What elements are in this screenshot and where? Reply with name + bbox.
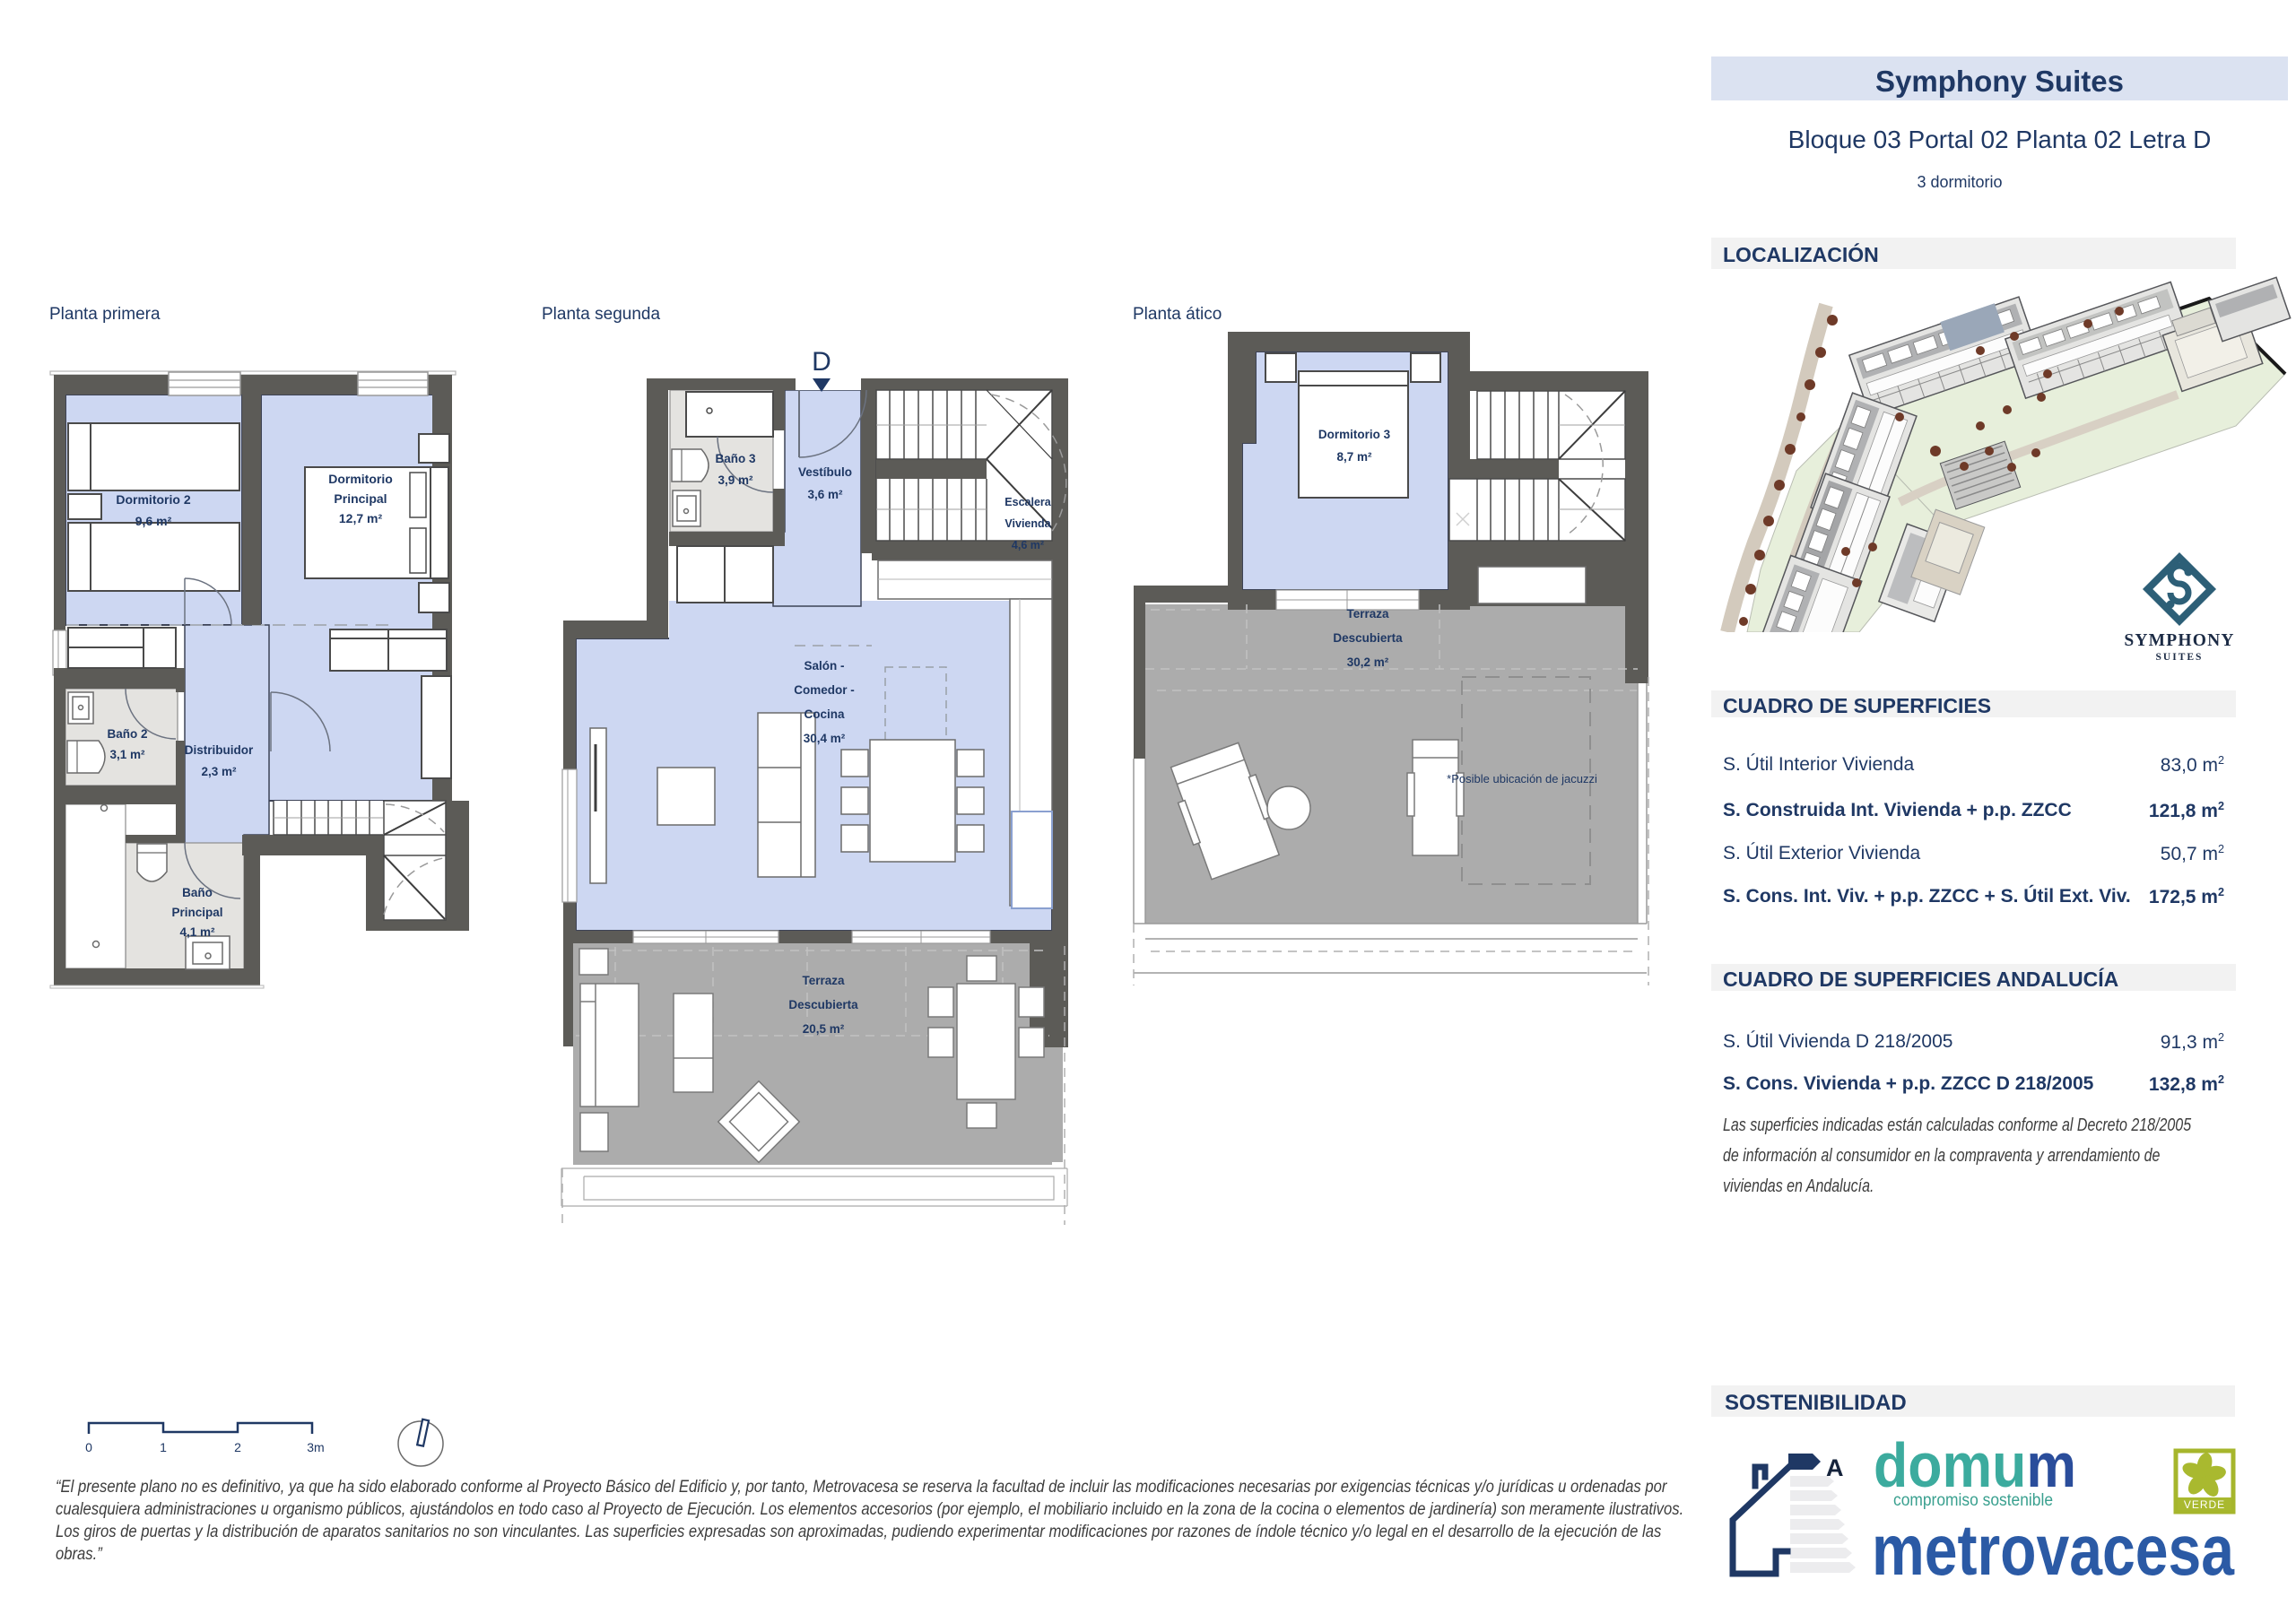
svg-text:Dormitorio 3: Dormitorio 3 <box>1318 428 1391 441</box>
svg-text:Terraza: Terraza <box>802 974 845 987</box>
svg-text:Principal: Principal <box>334 491 387 506</box>
svg-text:Principal: Principal <box>171 906 222 919</box>
svg-text:D: D <box>812 347 831 377</box>
svg-text:Cocina: Cocina <box>804 707 845 721</box>
svg-text:Distribuidor: Distribuidor <box>185 743 254 757</box>
svg-text:Baño 3: Baño 3 <box>715 452 756 465</box>
svg-text:30,2 m²: 30,2 m² <box>1347 655 1389 669</box>
svg-text:Vestíbulo: Vestíbulo <box>798 465 852 479</box>
svg-text:Baño 2: Baño 2 <box>107 727 147 741</box>
svg-text:2: 2 <box>234 1440 241 1454</box>
svg-text:0: 0 <box>85 1440 92 1454</box>
svg-text:20,5 m²: 20,5 m² <box>803 1022 845 1036</box>
svg-text:Vivienda: Vivienda <box>1004 517 1051 530</box>
svg-text:compromiso sostenible: compromiso sostenible <box>1893 1491 2053 1510</box>
svg-text:Dormitorio 2: Dormitorio 2 <box>116 492 190 507</box>
svg-text:3,6 m²: 3,6 m² <box>807 488 843 501</box>
svg-text:2,3 m²: 2,3 m² <box>201 765 237 778</box>
svg-text:12,7 m²: 12,7 m² <box>339 511 383 525</box>
svg-text:4,6 m²: 4,6 m² <box>1012 539 1044 551</box>
svg-text:A: A <box>1826 1454 1844 1481</box>
svg-text:VERDE: VERDE <box>2184 1498 2225 1511</box>
svg-text:SYMPHONY: SYMPHONY <box>2124 631 2234 650</box>
svg-text:Descubierta: Descubierta <box>1333 631 1403 645</box>
svg-text:Comedor -: Comedor - <box>794 683 855 697</box>
svg-text:3,9 m²: 3,9 m² <box>717 473 753 487</box>
svg-text:8,7 m²: 8,7 m² <box>1336 450 1372 464</box>
svg-text:3,1 m²: 3,1 m² <box>109 748 145 761</box>
svg-text:*Posible ubicación de jacuzzi: *Posible ubicación de jacuzzi <box>1447 772 1597 785</box>
svg-text:1: 1 <box>160 1440 167 1454</box>
svg-text:Escalera: Escalera <box>1004 496 1051 508</box>
svg-text:Baño: Baño <box>182 886 213 899</box>
svg-text:Descubierta: Descubierta <box>788 998 858 1011</box>
svg-text:SUITES: SUITES <box>2156 652 2204 663</box>
svg-text:4,1 m²: 4,1 m² <box>179 925 215 939</box>
svg-text:metrovacesa: metrovacesa <box>1872 1510 2235 1590</box>
svg-text:30,4 m²: 30,4 m² <box>804 732 846 745</box>
svg-text:3m: 3m <box>307 1440 324 1454</box>
svg-text:Terraza: Terraza <box>1346 607 1389 621</box>
svg-text:Dormitorio: Dormitorio <box>328 472 393 486</box>
svg-text:Salón -: Salón - <box>804 659 844 673</box>
svg-text:9,6 m²: 9,6 m² <box>135 514 172 528</box>
